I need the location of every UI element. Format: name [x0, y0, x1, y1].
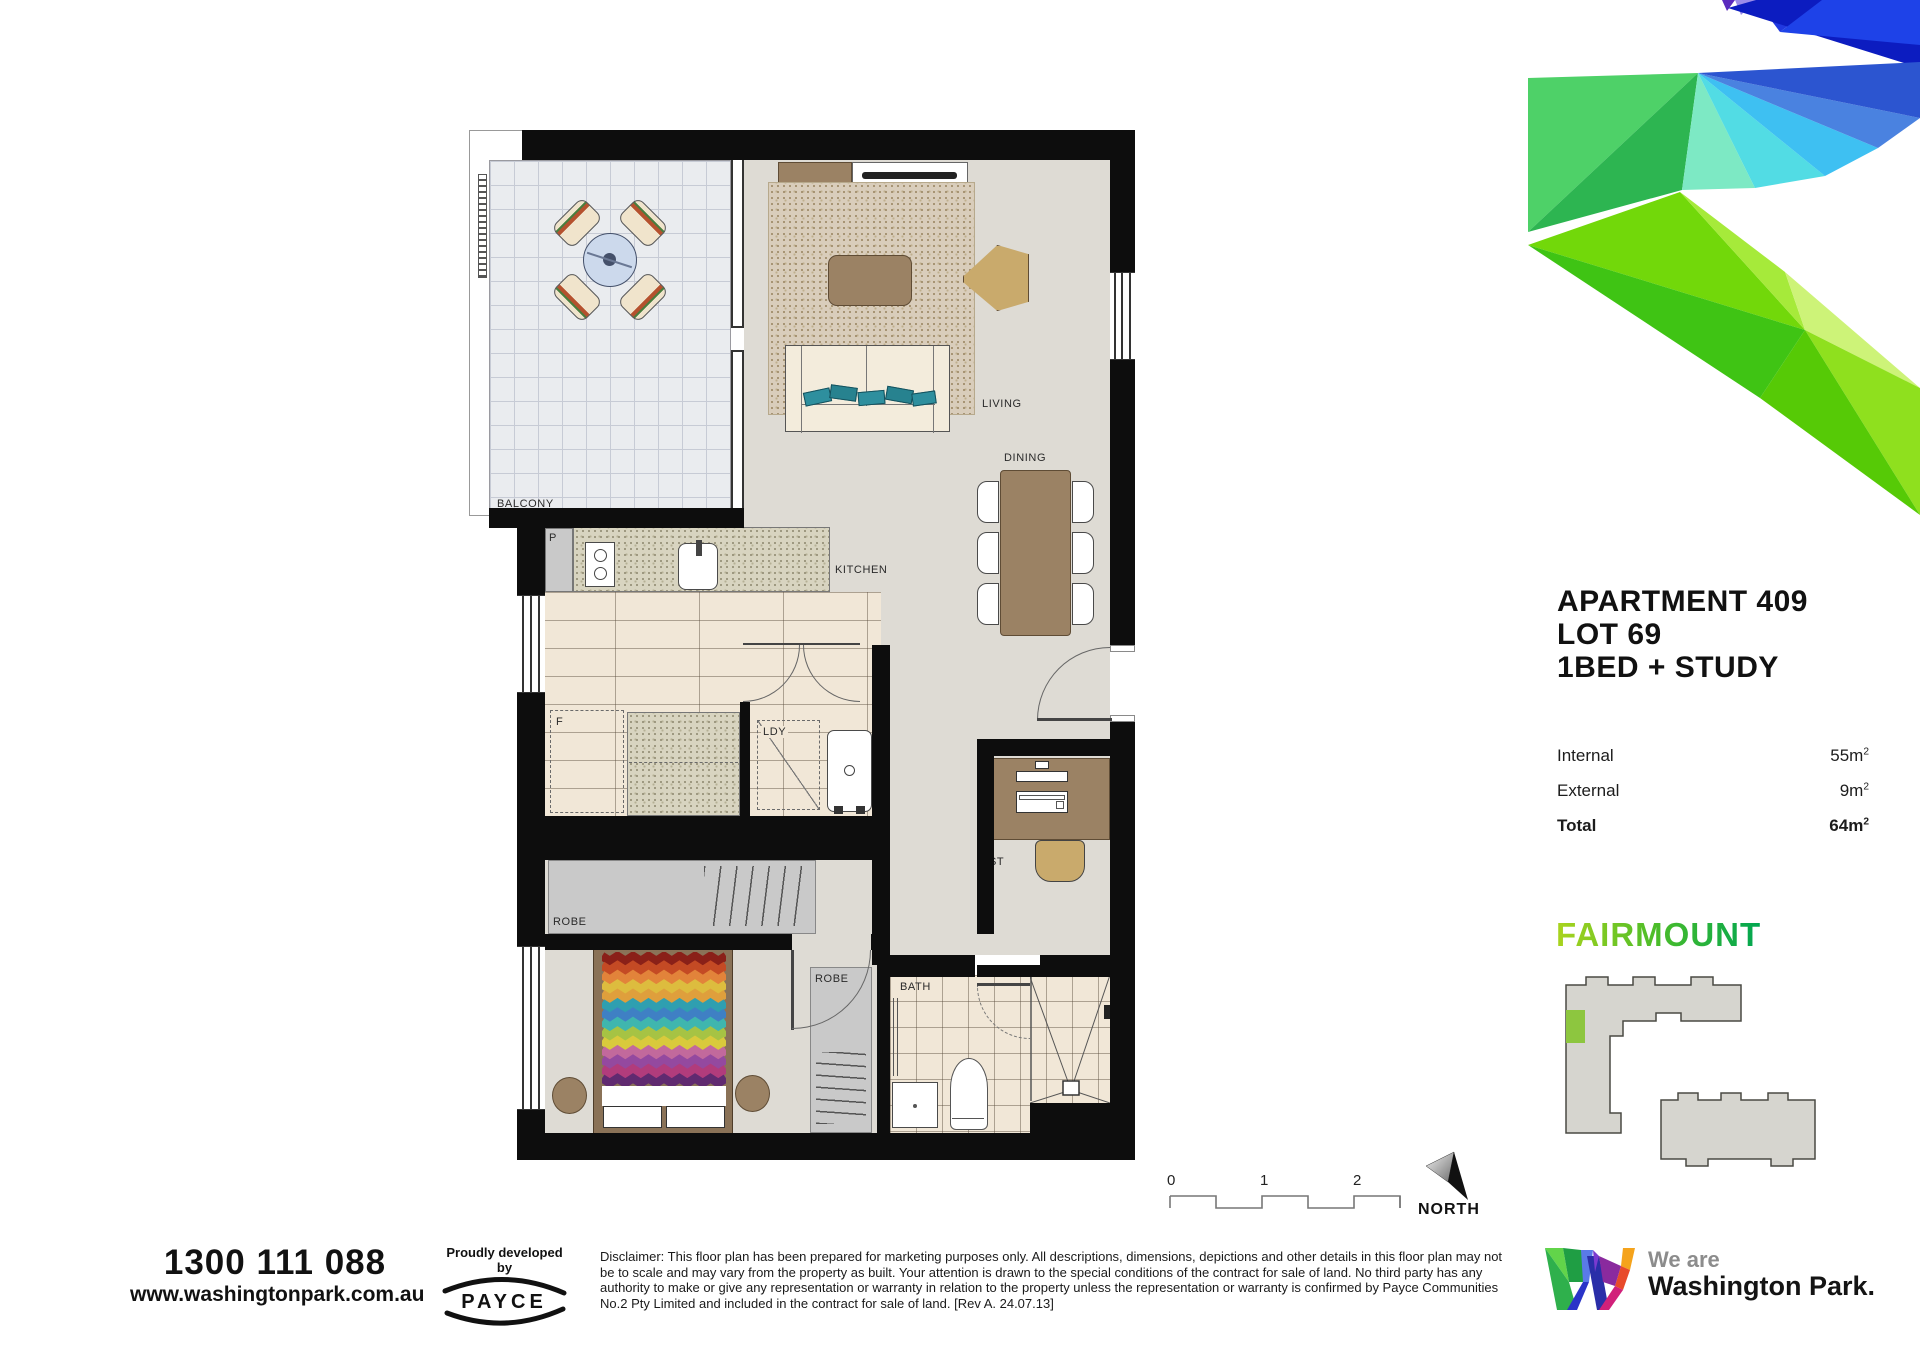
- bedside-table: [735, 1075, 770, 1112]
- footer-brand-prefix: We are: [1648, 1248, 1875, 1272]
- dining-table: [1000, 470, 1071, 636]
- laundry-tub: [827, 730, 872, 812]
- island-dash-line: [629, 762, 738, 763]
- wall-below-bench: [545, 816, 890, 860]
- monitor-stand-icon: [1035, 761, 1049, 769]
- developer-tagline: Proudly developed by: [437, 1245, 572, 1275]
- balcony-floor: [489, 160, 731, 516]
- kitchen-label: KITCHEN: [835, 564, 887, 576]
- hero-brand-graphic: [1520, 0, 1920, 520]
- robe-rail-marks: [704, 866, 809, 926]
- pillow: [666, 1106, 725, 1128]
- wall-bath-top-a: [877, 955, 975, 977]
- cistern-line: [952, 1118, 984, 1119]
- entry-jamb: [1110, 645, 1135, 652]
- tub-drain-icon: [844, 765, 855, 776]
- cushion: [885, 386, 914, 404]
- building-footprint-second: [1661, 1093, 1815, 1166]
- website: www.washingtonpark.com.au: [130, 1283, 420, 1307]
- study-chair: [1035, 840, 1085, 882]
- building-name: FAIRMOUNT: [1556, 916, 1761, 954]
- area-label: Total: [1557, 816, 1596, 836]
- area-row-external: External 9m2: [1557, 781, 1869, 801]
- burner-icon: [594, 567, 607, 580]
- wall-bottom: [517, 1133, 1135, 1160]
- entry-door-leaf: [1037, 718, 1112, 721]
- floor-plan: P KITCHEN F LDY ROBE LIVING: [469, 130, 1135, 1160]
- dining-label: DINING: [1004, 452, 1046, 464]
- highlighted-unit: [1566, 1010, 1585, 1043]
- dining-chair: [1072, 481, 1094, 523]
- bath-label: BATH: [900, 981, 931, 993]
- phone-number: 1300 111 088: [130, 1243, 420, 1283]
- wall-bath-duct: [1030, 1103, 1110, 1133]
- developer-logo: Proudly developed by PAYCE: [437, 1245, 572, 1332]
- area-value: 9m2: [1840, 781, 1869, 801]
- slider-break: [731, 326, 744, 352]
- wall-robe-bottom: [545, 934, 792, 950]
- dining-chair: [1072, 583, 1094, 625]
- wall-right-mid: [1110, 360, 1135, 645]
- keyboard-row: [1019, 795, 1065, 800]
- wall-top: [522, 130, 1135, 160]
- wall-robe2-right: [877, 975, 890, 1133]
- wall-island-ldy: [740, 702, 750, 816]
- scale-label-2: 2: [1353, 1172, 1361, 1189]
- wall-bath-top-b: [1040, 955, 1135, 977]
- sofa-arm: [786, 346, 802, 433]
- lot-title: LOT 69: [1557, 618, 1869, 651]
- living-label: LIVING: [982, 398, 1022, 410]
- entry-jamb: [1110, 715, 1135, 722]
- laundry-label: LDY: [761, 726, 788, 738]
- dining-chair: [1072, 532, 1094, 574]
- dining-chair: [977, 481, 999, 523]
- outdoor-table: [583, 233, 637, 287]
- dining-chair: [977, 583, 999, 625]
- fridge-label: F: [556, 716, 563, 728]
- bed-sheet: [602, 1086, 726, 1106]
- area-value: 64m2: [1829, 816, 1869, 836]
- payce-logo: PAYCE: [437, 1275, 572, 1327]
- footer-brand-name: Washington Park.: [1648, 1272, 1875, 1300]
- robe-hall-label: ROBE: [553, 916, 587, 928]
- wall-study-left: [977, 756, 994, 934]
- wall-robe-jamb: [871, 934, 890, 950]
- tap-icon: [856, 806, 865, 814]
- bedside-table: [552, 1077, 587, 1114]
- bed: [593, 943, 733, 1135]
- scale-bar: 0 1 2: [1165, 1172, 1415, 1220]
- washington-park-w-icon: [1543, 1242, 1640, 1314]
- monitor-icon: [1016, 771, 1068, 782]
- faucet-icon: [696, 540, 702, 556]
- wall-study-top: [977, 739, 1135, 756]
- bed-chevron-blanket: [602, 952, 726, 1086]
- balcony-glass-wall: [731, 160, 744, 516]
- wall-right-upper: [1110, 160, 1135, 272]
- robe-bed-rails: [816, 1052, 866, 1124]
- keyboard-icon: [1016, 791, 1068, 813]
- wall-laundry-right: [872, 645, 890, 965]
- scale-label-1: 1: [1260, 1172, 1268, 1189]
- study-desk: [989, 758, 1110, 840]
- north-indicator: NORTH: [1418, 1150, 1488, 1220]
- tv-icon: [862, 172, 957, 179]
- vanity-edge: [893, 998, 898, 1076]
- cushion: [857, 390, 885, 406]
- island-bench: [627, 712, 740, 816]
- sofa-arm: [933, 346, 949, 433]
- apartment-title: APARTMENT 409: [1557, 585, 1869, 618]
- burner-icon: [594, 549, 607, 562]
- pantry-label: P: [549, 532, 557, 544]
- contact-block: 1300 111 088 www.washingtonpark.com.au: [130, 1243, 420, 1307]
- mouse-icon: [1056, 801, 1064, 809]
- bedroom-window: [517, 946, 545, 1110]
- coffee-table: [828, 255, 912, 306]
- wall-right-lower: [1110, 722, 1135, 1160]
- tap-icon: [834, 806, 843, 814]
- config-title: 1BED + STUDY: [1557, 651, 1869, 684]
- sofa: [785, 345, 950, 432]
- vanity-basin: [892, 1082, 938, 1128]
- kitchen-window: [517, 595, 545, 693]
- dining-window: [1110, 272, 1135, 360]
- cooktop: [585, 542, 615, 587]
- developer-name: PAYCE: [461, 1291, 547, 1313]
- pillow: [603, 1106, 662, 1128]
- site-key-plan: [1553, 963, 1863, 1198]
- title-block: APARTMENT 409 LOT 69 1BED + STUDY Intern…: [1557, 585, 1869, 851]
- area-row-total: Total 64m2: [1557, 816, 1869, 836]
- area-label: Internal: [1557, 746, 1614, 766]
- cushion: [829, 384, 858, 402]
- area-label: External: [1557, 781, 1619, 801]
- scale-bar-graphic: [1165, 1194, 1405, 1212]
- disclaimer-text: Disclaimer: This floor plan has been pre…: [600, 1249, 1505, 1311]
- area-row-internal: Internal 55m2: [1557, 746, 1869, 766]
- dining-chair: [977, 532, 999, 574]
- balcony-louvre: [478, 174, 487, 278]
- toilet: [950, 1058, 988, 1130]
- scale-label-0: 0: [1167, 1172, 1175, 1189]
- north-arrow-icon: [1418, 1150, 1478, 1200]
- kitchen-sink: [678, 543, 718, 590]
- shower: [1030, 975, 1110, 1103]
- basin-drain-icon: [913, 1104, 917, 1108]
- area-value: 55m2: [1830, 746, 1869, 766]
- north-label: NORTH: [1418, 1201, 1488, 1219]
